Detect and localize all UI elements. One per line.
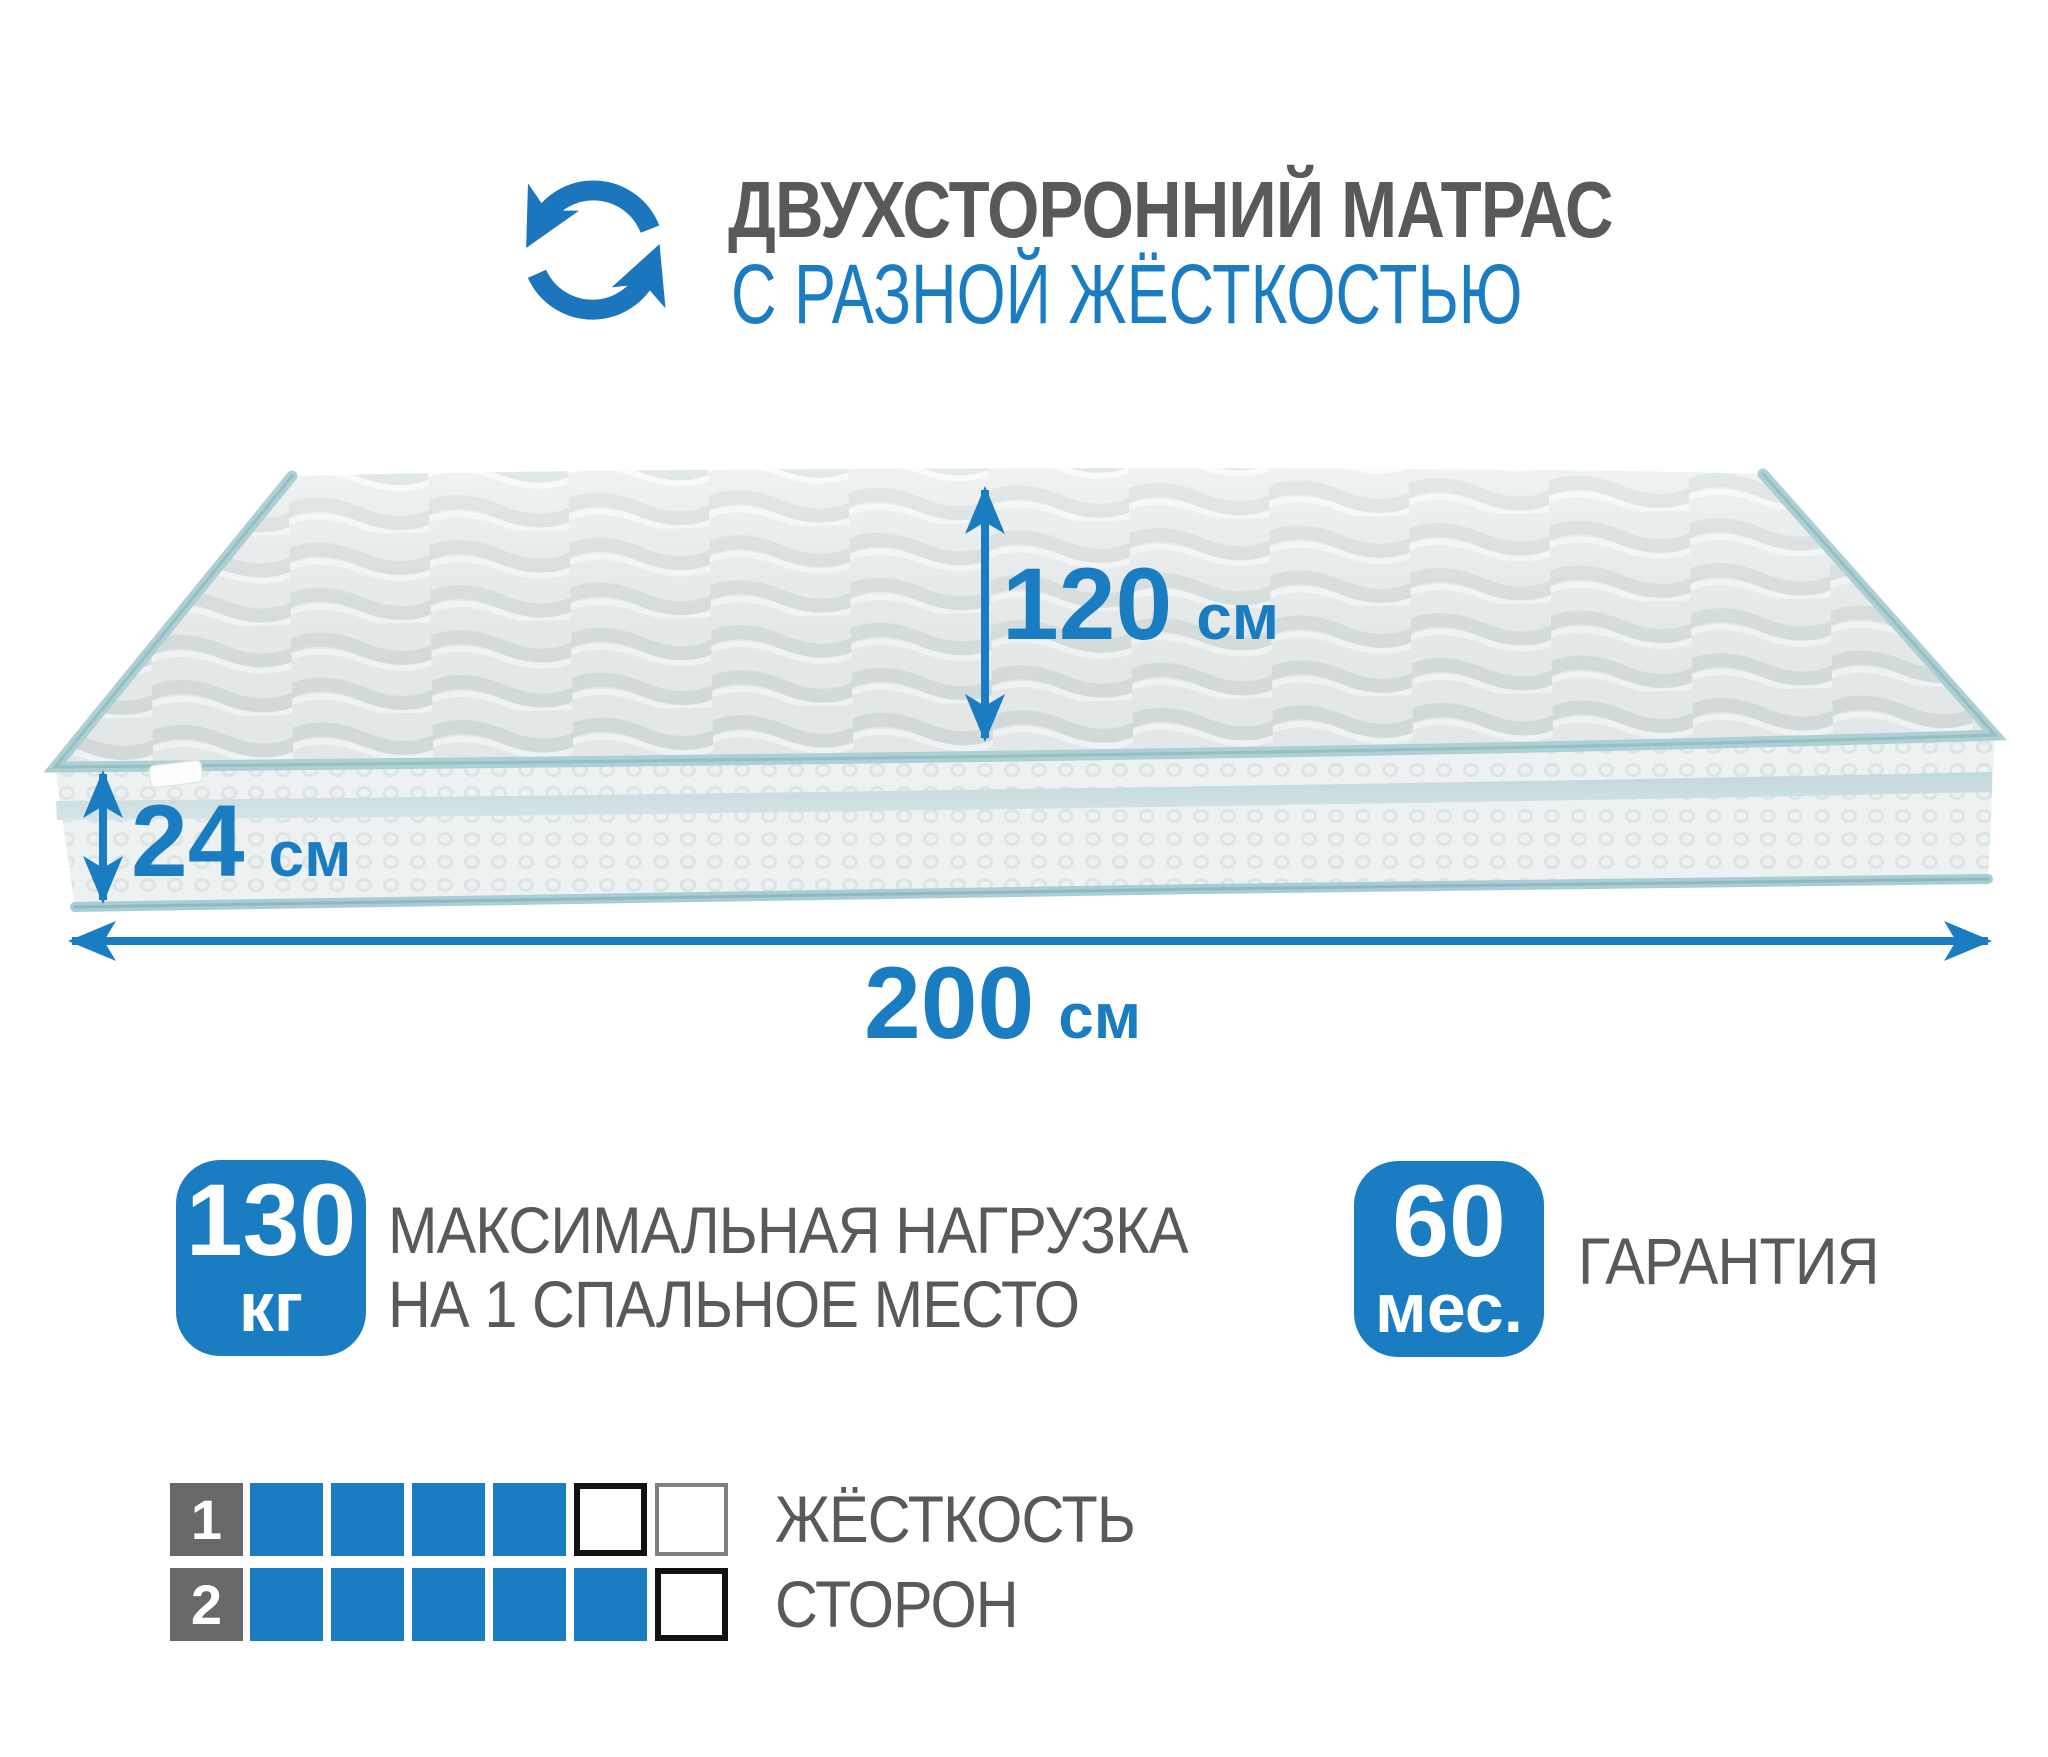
firmness-cell-filled xyxy=(412,1568,485,1641)
max-load-label: МАКСИМАЛЬНАЯ НАГРУЗКА НА 1 СПАЛЬНОЕ МЕСТ… xyxy=(388,1194,1188,1342)
dim-label-width: 120 см xyxy=(1002,553,1279,655)
firmness-cell-filled xyxy=(574,1568,647,1641)
warranty-value: 60 xyxy=(1392,1175,1505,1269)
mattress-infographic: ДВУХСТОРОННИЙ МАТРАС С РАЗНОЙ ЖЁСТКОСТЬЮ xyxy=(0,0,2048,1757)
dim-length-value: 200 xyxy=(864,952,1034,1054)
max-load-unit: кг xyxy=(239,1272,303,1342)
firmness-row-side1: 1 ЖЁСТКОСТЬ xyxy=(170,1481,1175,1557)
firmness-cell-filled xyxy=(493,1568,566,1641)
firmness-side2-number: 2 xyxy=(170,1568,243,1641)
warranty-badge: 60 мес. xyxy=(1354,1161,1544,1357)
firmness-cell-filled xyxy=(250,1483,323,1556)
dim-height-value: 24 xyxy=(131,790,244,892)
warranty-unit: мес. xyxy=(1375,1273,1523,1343)
firmness-cell-empty-light xyxy=(655,1483,728,1556)
firmness-cell-filled xyxy=(331,1483,404,1556)
firmness-legend-line2: СТОРОН xyxy=(775,1566,1018,1642)
dim-length-unit: см xyxy=(1058,984,1141,1048)
dim-width-value: 120 xyxy=(1002,553,1172,655)
warranty-label: ГАРАНТИЯ xyxy=(1578,1225,1879,1299)
dim-width-unit: см xyxy=(1196,585,1279,649)
dim-height-unit: см xyxy=(268,822,351,886)
firmness-cell-filled xyxy=(412,1483,485,1556)
firmness-cell-empty xyxy=(574,1483,647,1556)
firmness-cell-filled xyxy=(331,1568,404,1641)
firmness-cell-filled xyxy=(250,1568,323,1641)
firmness-row-side2: 2 СТОРОН xyxy=(170,1566,1175,1642)
dim-label-length: 200 см xyxy=(864,952,1141,1054)
firmness-side1-cells xyxy=(250,1483,728,1556)
dim-label-height: 24 см xyxy=(131,790,351,892)
max-load-label-line2: НА 1 СПАЛЬНОЕ МЕСТО xyxy=(388,1268,1188,1342)
max-load-badge: 130 кг xyxy=(176,1160,366,1356)
firmness-side1-number: 1 xyxy=(170,1483,243,1556)
max-load-label-line1: МАКСИМАЛЬНАЯ НАГРУЗКА xyxy=(388,1194,1188,1268)
firmness-side2-cells xyxy=(250,1568,728,1641)
firmness-cell-empty xyxy=(655,1568,728,1641)
firmness-legend-line1: ЖЁСТКОСТЬ xyxy=(775,1481,1135,1557)
firmness-cell-filled xyxy=(493,1483,566,1556)
max-load-value: 130 xyxy=(186,1174,356,1268)
firmness-scale: 1 ЖЁСТКОСТЬ 2 СТОРОН xyxy=(170,1481,1175,1642)
